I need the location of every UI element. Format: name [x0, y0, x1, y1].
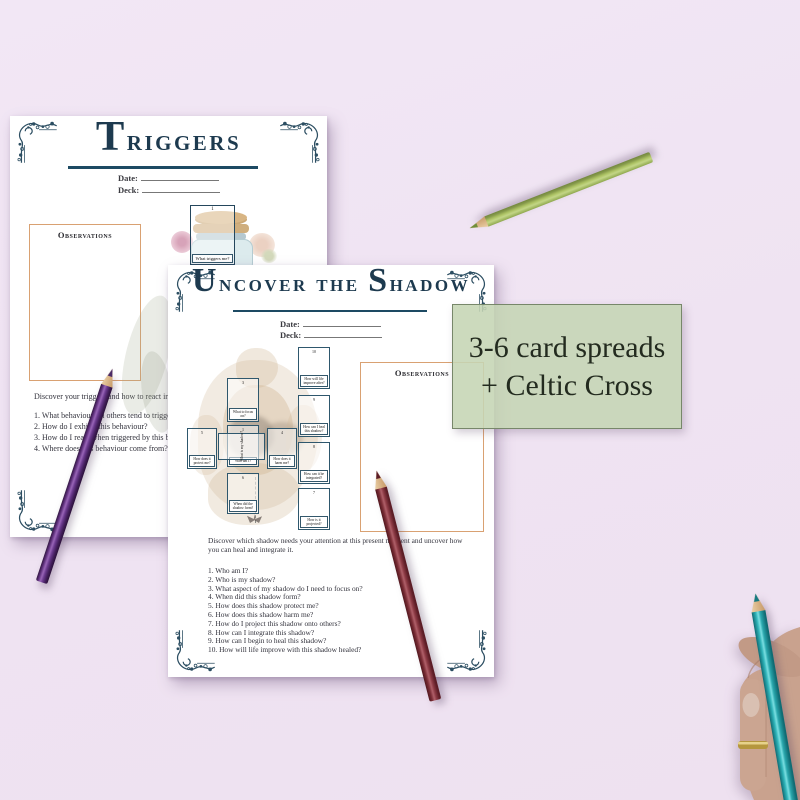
date-label: Date:: [280, 319, 300, 329]
pencil-tip: [468, 216, 489, 233]
spread-card: 9 How can I heal this shadow?: [298, 395, 330, 437]
card-label: How can it be integrated?: [300, 470, 328, 482]
question-list: 1. Who am I? 2. Who is my shadow? 3. Wha…: [208, 567, 478, 655]
spread-card-crossing: What is my shadow?: [218, 433, 265, 460]
card-number: 1: [191, 207, 234, 212]
product-mockup-scene: Triggers Date: Deck: 1 What triggers me?…: [0, 0, 800, 800]
spread-card: 4 How does it harm me?: [267, 428, 297, 469]
corner-flourish-icon: [13, 488, 59, 534]
card-label: How will life improve after?: [300, 375, 328, 387]
shadow-worksheet-page: Uncover the Shadow Date: Deck: 1 Who am …: [168, 265, 494, 677]
card-number: 5: [188, 430, 216, 435]
date-blank-line: [303, 319, 381, 327]
spread-card: 10 How will life improve after?: [298, 347, 330, 389]
badge-line-1: 3-6 card spreads: [469, 329, 666, 367]
intro-text: Discover which shadow needs your attenti…: [208, 536, 472, 554]
question-item: 10. How will life improve with this shad…: [208, 646, 478, 655]
spread-card: 7 How is it projected?: [298, 488, 330, 530]
green-pencil: [468, 152, 654, 233]
card-number: 7: [299, 490, 329, 495]
card-label: What is my shadow?: [238, 430, 244, 464]
card-number: 8: [299, 444, 329, 449]
page-title: Triggers: [10, 124, 327, 158]
card-number: 10: [299, 349, 329, 354]
title-underline: [233, 310, 427, 312]
card-label: When did the shadow form?: [229, 500, 257, 512]
card-number: 9: [299, 397, 329, 402]
pencil-shaft: [484, 152, 653, 227]
badge-line-2: + Celtic Cross: [481, 367, 653, 405]
date-field: Date:: [280, 319, 381, 329]
deck-blank-line: [304, 330, 382, 338]
page-title: Uncover the Shadow: [168, 271, 494, 298]
spread-card: 6 When did the shadow form?: [227, 473, 259, 514]
date-field: Date:: [118, 173, 219, 183]
card-label: How does it protect me?: [189, 455, 215, 467]
date-blank-line: [141, 173, 219, 181]
card-number: 6: [228, 475, 258, 480]
spread-card: 3 What to focus on?: [227, 378, 259, 422]
deck-field: Deck:: [280, 330, 382, 340]
leaf-illustration: [261, 249, 277, 263]
deck-field: Deck:: [118, 185, 220, 195]
card-number: 3: [228, 380, 258, 385]
deck-blank-line: [142, 185, 220, 193]
deck-label: Deck:: [118, 185, 139, 195]
spread-card: 5 How does it protect me?: [187, 428, 217, 469]
card-label: How can I heal this shadow?: [300, 423, 328, 435]
deck-label: Deck:: [280, 330, 301, 340]
promo-badge: 3-6 card spreads + Celtic Cross: [452, 304, 682, 429]
pencil-tip: [749, 592, 766, 612]
date-label: Date:: [118, 173, 138, 183]
card-label: What to focus on?: [229, 408, 257, 420]
observations-label: Observations: [30, 225, 140, 240]
title-underline: [68, 166, 258, 169]
thumbnail: [743, 693, 760, 717]
card-label: How does it harm me?: [269, 455, 295, 467]
spread-card: 8 How can it be integrated?: [298, 442, 330, 484]
card-number: 4: [268, 430, 296, 435]
card-label: How is it projected?: [300, 516, 328, 528]
spread-card: 1 What triggers me?: [190, 205, 235, 265]
